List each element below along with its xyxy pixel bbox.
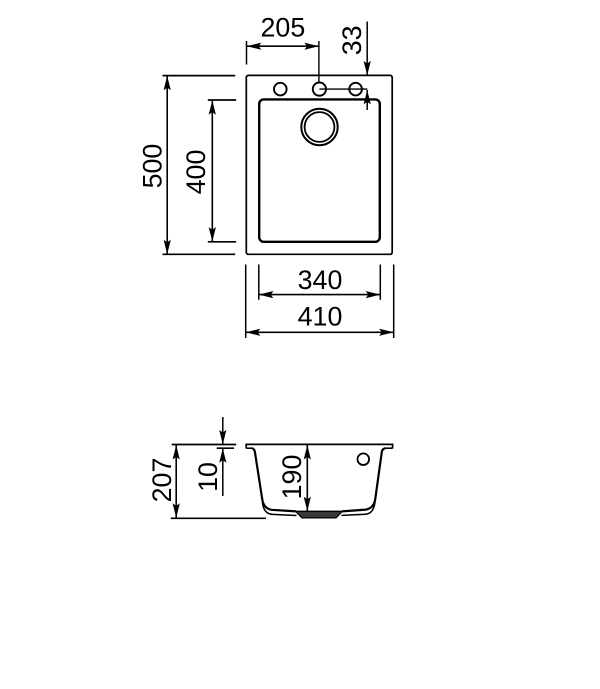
svg-text:10: 10 — [193, 462, 223, 492]
svg-text:410: 410 — [298, 302, 343, 332]
svg-text:190: 190 — [277, 455, 307, 500]
svg-text:340: 340 — [298, 265, 343, 295]
svg-text:500: 500 — [137, 144, 167, 189]
svg-text:205: 205 — [261, 13, 306, 43]
svg-text:207: 207 — [147, 458, 177, 503]
svg-text:400: 400 — [181, 150, 211, 195]
svg-text:33: 33 — [337, 25, 367, 55]
